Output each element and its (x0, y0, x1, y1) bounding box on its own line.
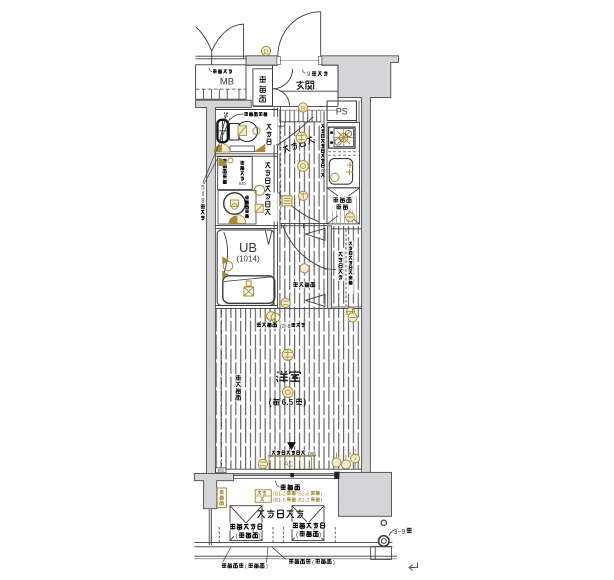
svg-text:2: 2 (349, 451, 352, 456)
svg-text:(: ( (312, 560, 314, 566)
svg-text:(: ( (269, 397, 272, 407)
svg-text:2: 2 (345, 311, 348, 317)
svg-text:(1014): (1014) (236, 255, 259, 264)
svg-text:W: W (321, 168, 325, 173)
svg-text:D: D (264, 49, 269, 56)
svg-text:): ) (321, 491, 323, 497)
svg-text:·B2-6: ·B2-6 (297, 491, 310, 497)
svg-text:(2~8: (2~8 (280, 324, 291, 330)
svg-text:MB: MB (220, 77, 234, 88)
svg-text:·B2-3: ·B2-3 (297, 498, 310, 504)
svg-text:PS: PS (336, 107, 348, 117)
svg-text:): ) (319, 532, 321, 539)
svg-text:(B1-2: (B1-2 (273, 491, 286, 497)
svg-text:640: 640 (239, 181, 247, 186)
svg-text:6.5: 6.5 (282, 397, 294, 407)
svg-text:(B1-5: (B1-5 (273, 498, 286, 504)
svg-text:AC: AC (284, 462, 294, 469)
svg-text:): ) (259, 533, 261, 540)
svg-text:B: B (301, 105, 305, 112)
svg-text:): ) (303, 397, 306, 407)
svg-text:2: 2 (265, 315, 268, 321)
svg-text:3~9: 3~9 (394, 529, 406, 536)
svg-text:): ) (321, 498, 323, 504)
svg-text:): ) (266, 564, 268, 570)
svg-text:8: 8 (201, 198, 205, 205)
svg-text:UB: UB (239, 240, 257, 255)
svg-text:): ) (333, 560, 335, 566)
svg-text:RS: RS (218, 468, 224, 473)
svg-text:(: ( (245, 564, 247, 570)
svg-text:5: 5 (201, 185, 205, 192)
